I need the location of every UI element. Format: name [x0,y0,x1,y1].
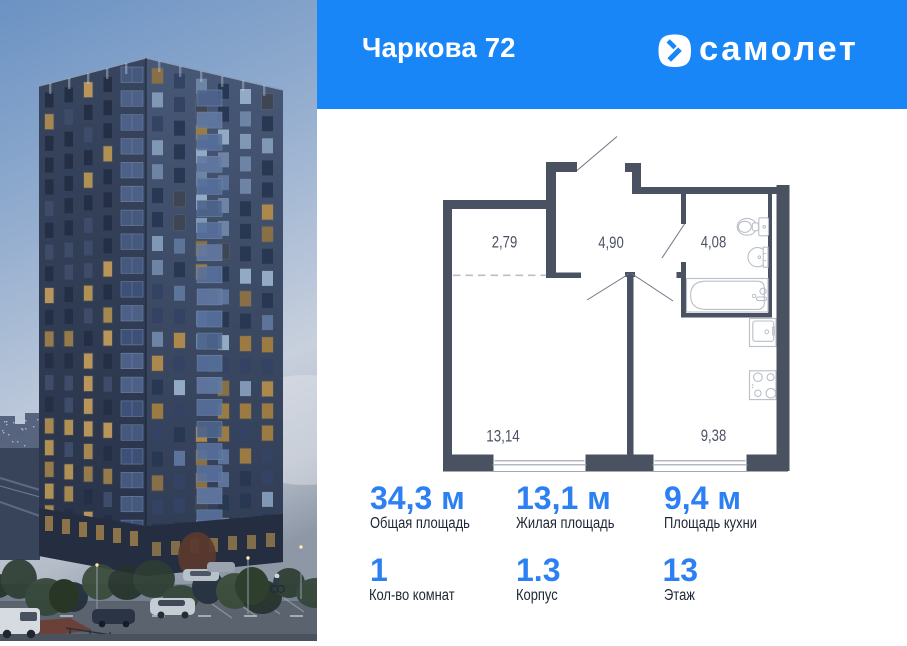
svg-text:13,14: 13,14 [486,428,520,446]
svg-text:2,79: 2,79 [492,234,518,252]
svg-text:9,38: 9,38 [701,427,727,445]
svg-text:4,08: 4,08 [701,234,727,252]
svg-text:4,90: 4,90 [598,234,624,252]
